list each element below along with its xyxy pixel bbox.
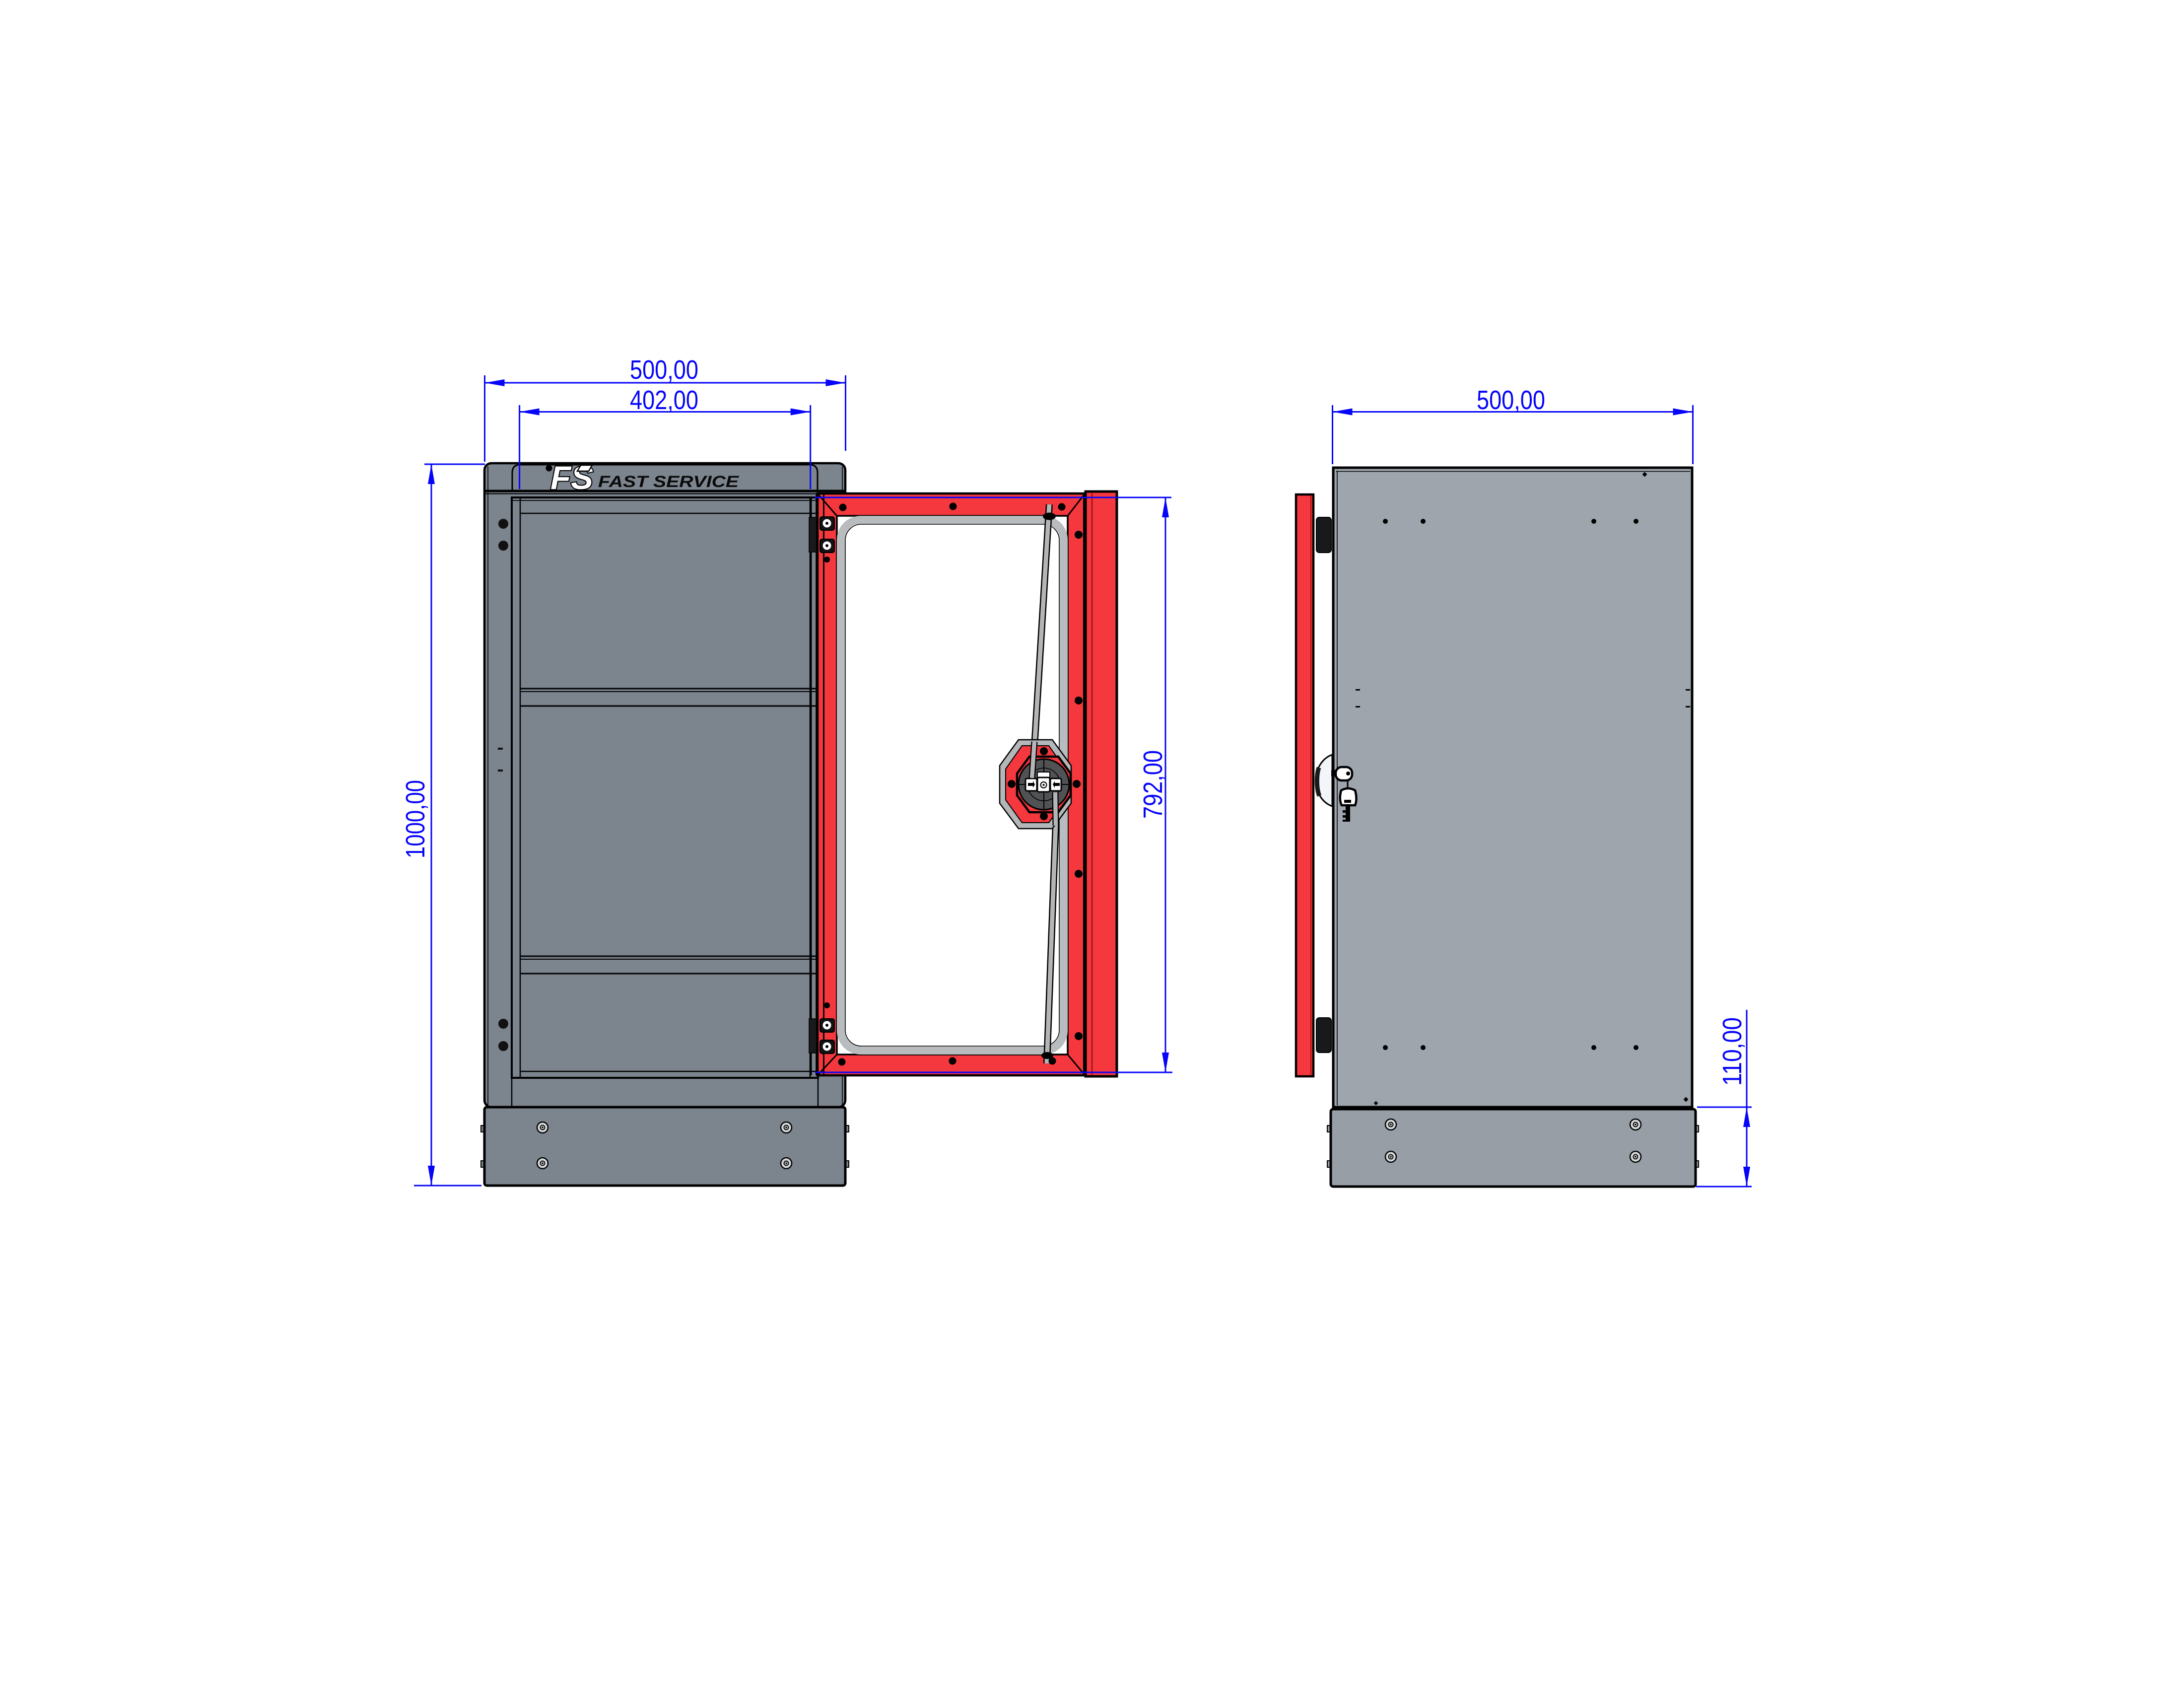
svg-text:792,00: 792,00 <box>1138 750 1168 819</box>
svg-text:1000,00: 1000,00 <box>401 780 430 858</box>
svg-text:110,00: 110,00 <box>1717 1017 1747 1086</box>
svg-text:500,00: 500,00 <box>1477 385 1545 415</box>
svg-text:500,00: 500,00 <box>630 355 698 385</box>
svg-text:402,00: 402,00 <box>630 385 698 415</box>
svg-text:FAST SERVICE: FAST SERVICE <box>598 473 740 491</box>
